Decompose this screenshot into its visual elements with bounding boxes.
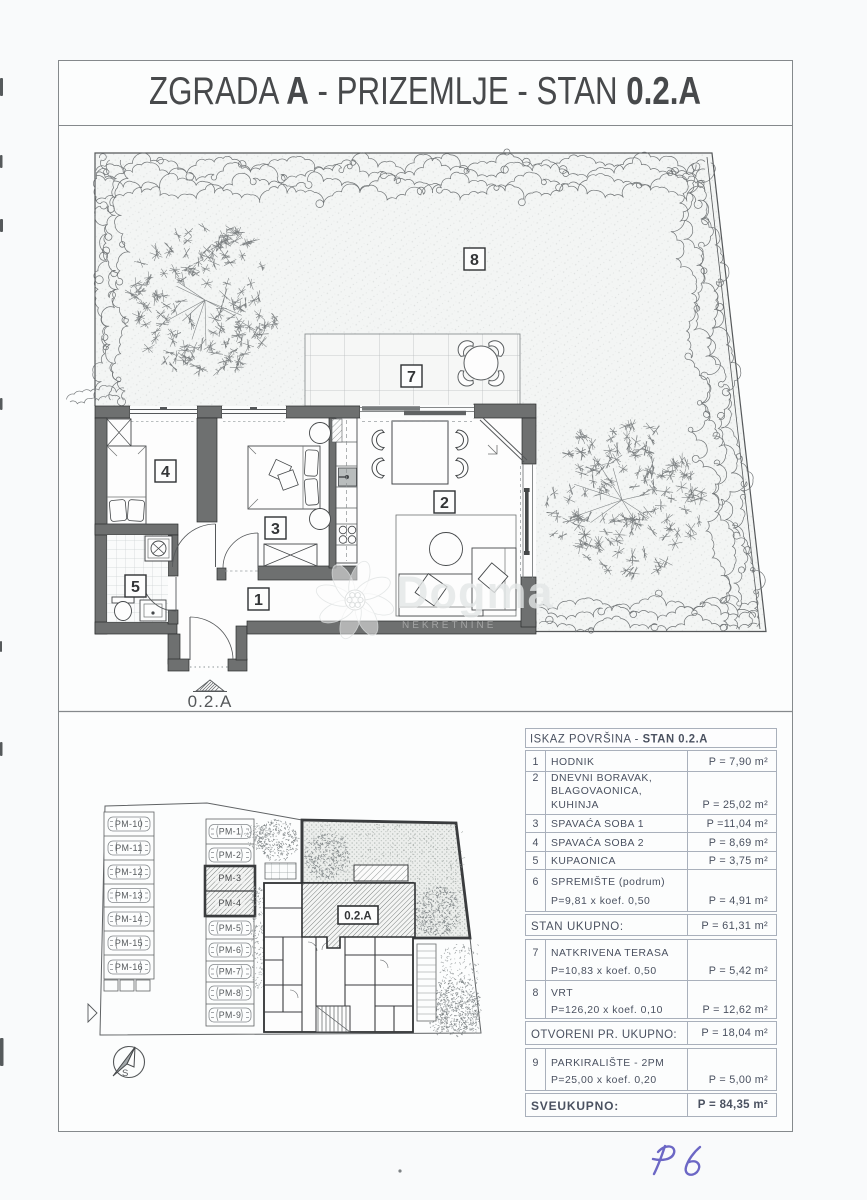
svg-text:PM-6: PM-6	[219, 945, 242, 955]
svg-text:PM-2: PM-2	[219, 850, 242, 860]
svg-text:S: S	[122, 1068, 128, 1079]
svg-text:P = 8,69 m²: P = 8,69 m²	[709, 837, 768, 849]
svg-text:8: 8	[533, 987, 539, 999]
svg-text:7: 7	[533, 947, 539, 959]
svg-text:DNEVNI BORAVAK,: DNEVNI BORAVAK,	[551, 773, 652, 784]
svg-text:KUHINJA: KUHINJA	[551, 800, 599, 811]
svg-text:P = 5,42 m²: P = 5,42 m²	[709, 965, 768, 977]
svg-text:P=25,00 x koef. 0,20: P=25,00 x koef. 0,20	[551, 1075, 657, 1086]
svg-text:ISKAZ POVRŠINA - STAN 0.2.A: ISKAZ POVRŠINA - STAN 0.2.A	[530, 731, 708, 746]
svg-text:1: 1	[254, 592, 263, 609]
svg-text:3: 3	[271, 521, 280, 538]
svg-text:4: 4	[161, 464, 170, 481]
svg-text:HODNIK: HODNIK	[551, 757, 594, 768]
svg-text:KUPAONICA: KUPAONICA	[551, 856, 616, 867]
svg-text:6: 6	[533, 876, 539, 888]
svg-text:4: 4	[533, 837, 539, 849]
svg-text:1: 1	[533, 756, 539, 768]
svg-text:SVEUKUPNO:: SVEUKUPNO:	[531, 1099, 619, 1113]
svg-text:7: 7	[407, 369, 416, 386]
svg-text:Dogma: Dogma	[396, 567, 554, 618]
svg-text:3: 3	[533, 818, 539, 830]
svg-text:2: 2	[440, 495, 449, 512]
svg-text:NEKRETNINE: NEKRETNINE	[402, 620, 496, 631]
svg-text:PM-11: PM-11	[115, 843, 142, 853]
svg-text:P=9,81 x koef. 0,50: P=9,81 x koef. 0,50	[551, 896, 650, 907]
svg-text:PM-15: PM-15	[115, 938, 143, 948]
svg-text:PM-7: PM-7	[219, 967, 242, 977]
svg-text:P=10,83 x koef. 0,50: P=10,83 x koef. 0,50	[551, 966, 657, 977]
svg-text:PM-16: PM-16	[115, 962, 143, 972]
svg-text:PM-8: PM-8	[219, 988, 242, 998]
svg-text:PM-13: PM-13	[115, 891, 143, 901]
svg-text:NATKRIVENA TERASA: NATKRIVENA TERASA	[551, 948, 669, 959]
svg-text:0.2.A: 0.2.A	[188, 692, 233, 711]
svg-text:PARKIRALIŠTE - 2PM: PARKIRALIŠTE - 2PM	[551, 1056, 664, 1069]
svg-text:PM-1: PM-1	[219, 827, 242, 837]
svg-text:9: 9	[533, 1057, 539, 1069]
svg-text:VRT: VRT	[551, 988, 573, 999]
svg-text:P = 5,00 m²: P = 5,00 m²	[709, 1074, 768, 1086]
svg-text:PM-3: PM-3	[218, 873, 241, 883]
svg-text:PM-14: PM-14	[115, 914, 143, 924]
svg-text:SPREMIŠTE (podrum): SPREMIŠTE (podrum)	[551, 875, 665, 888]
svg-text:P =11,04 m²: P =11,04 m²	[707, 818, 769, 830]
svg-text:SPAVAĆA SOBA 2: SPAVAĆA SOBA 2	[551, 836, 644, 849]
svg-text:P = 61,31 m²: P = 61,31 m²	[701, 920, 768, 932]
svg-text:BLAGOVAONICA,: BLAGOVAONICA,	[551, 786, 642, 797]
svg-text:P = 7,90 m²: P = 7,90 m²	[709, 756, 768, 768]
svg-text:P = 12,62 m²: P = 12,62 m²	[702, 1004, 768, 1016]
svg-text:PM-10: PM-10	[115, 819, 143, 829]
svg-text:P = 25,02 m²: P = 25,02 m²	[702, 799, 768, 811]
svg-text:SPAVAĆA SOBA 1: SPAVAĆA SOBA 1	[551, 817, 644, 830]
svg-text:PM-5: PM-5	[219, 923, 242, 933]
svg-text:P = 3,75 m²: P = 3,75 m²	[709, 855, 768, 867]
svg-text:PM-12: PM-12	[115, 867, 143, 877]
svg-text:PM-9: PM-9	[219, 1010, 242, 1020]
svg-text:8: 8	[470, 252, 479, 269]
svg-text:5: 5	[131, 579, 140, 596]
svg-text:P = 4,91 m²: P = 4,91 m²	[709, 895, 768, 907]
svg-text:STAN UKUPNO:: STAN UKUPNO:	[531, 921, 624, 933]
svg-text:0.2.A: 0.2.A	[344, 911, 372, 923]
svg-text:P = 18,04 m²: P = 18,04 m²	[701, 1027, 768, 1039]
svg-text:P=126,20 x koef. 0,10: P=126,20 x koef. 0,10	[551, 1005, 663, 1016]
svg-text:PM-4: PM-4	[218, 898, 241, 908]
svg-text:2: 2	[533, 772, 539, 784]
svg-text:ZGRADA A - PRIZEMLJE - STAN 0.: ZGRADA A - PRIZEMLJE - STAN 0.2.A	[149, 70, 701, 113]
svg-text:OTVORENI PR. UKUPNO:: OTVORENI PR. UKUPNO:	[531, 1029, 677, 1041]
svg-text:5: 5	[533, 855, 539, 867]
svg-text:P = 84,35 m²: P = 84,35 m²	[698, 1099, 768, 1111]
